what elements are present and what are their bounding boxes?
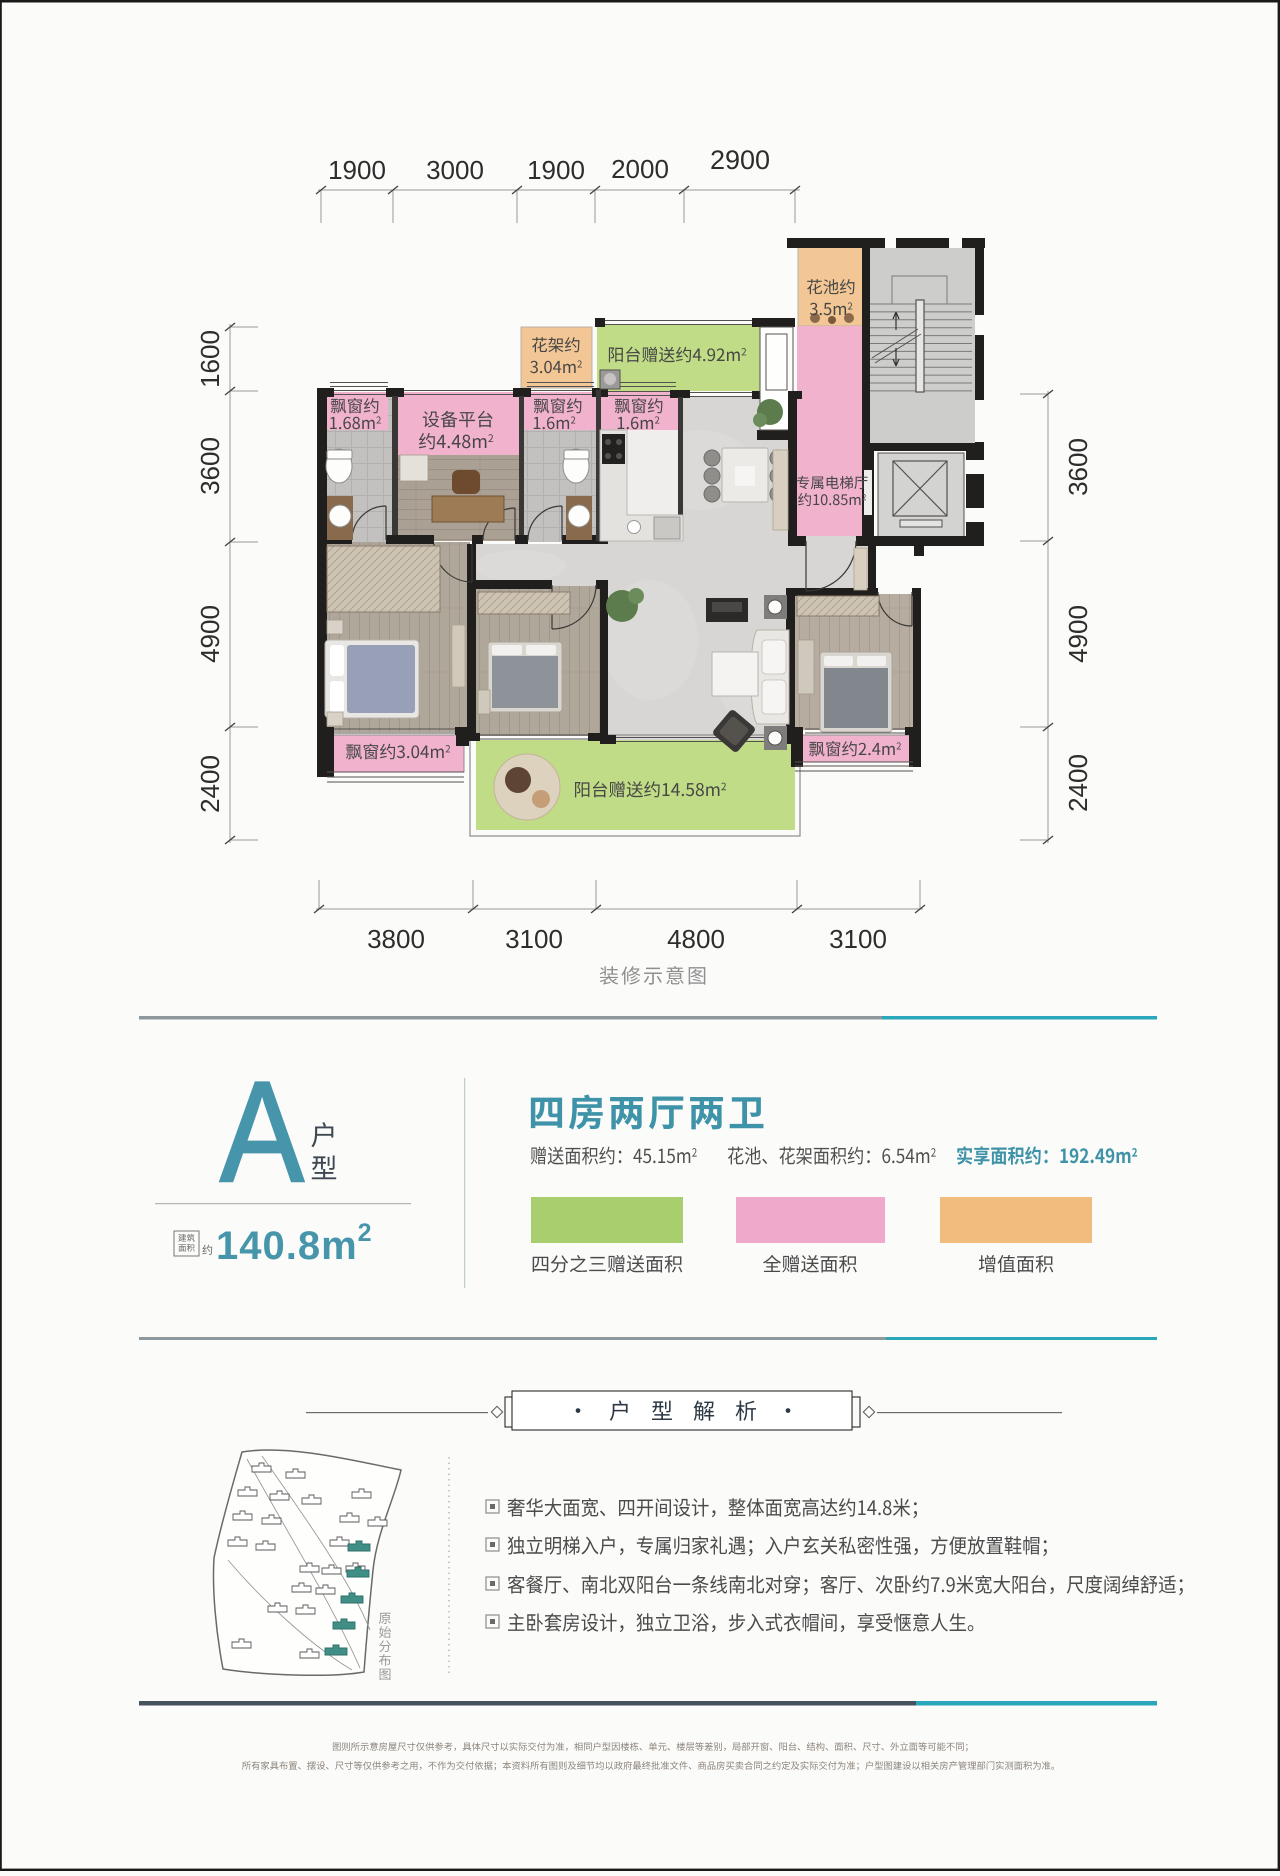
svg-text:3600: 3600 xyxy=(195,437,225,495)
svg-text:3100: 3100 xyxy=(829,924,887,954)
svg-text:3800: 3800 xyxy=(367,924,425,954)
svg-text:4800: 4800 xyxy=(667,924,725,954)
svg-text:1900: 1900 xyxy=(328,155,386,185)
svg-text:140.8m2: 140.8m2 xyxy=(216,1219,373,1268)
svg-text:3100: 3100 xyxy=(505,924,563,954)
svg-text:1600: 1600 xyxy=(195,330,225,388)
svg-text:2400: 2400 xyxy=(195,755,225,813)
svg-text:2000: 2000 xyxy=(611,154,669,184)
svg-text:2900: 2900 xyxy=(710,145,770,175)
svg-text:A: A xyxy=(220,1051,304,1211)
svg-text:4900: 4900 xyxy=(1063,605,1093,663)
svg-text:3600: 3600 xyxy=(1063,438,1093,496)
svg-text:2400: 2400 xyxy=(1063,754,1093,812)
svg-text:3000: 3000 xyxy=(426,155,484,185)
svg-text:4900: 4900 xyxy=(195,605,225,663)
svg-text:1900: 1900 xyxy=(527,155,585,185)
